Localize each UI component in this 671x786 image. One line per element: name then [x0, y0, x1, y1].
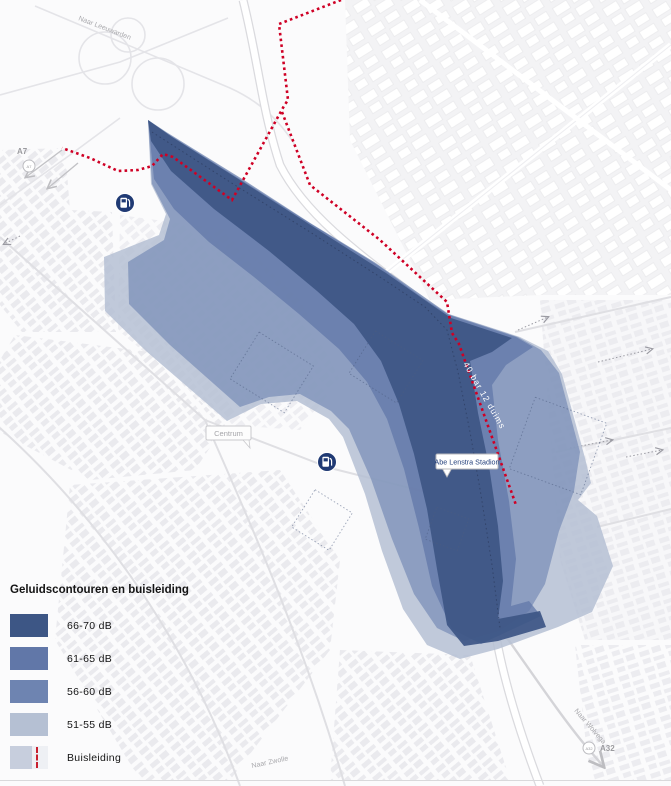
legend-swatch-66-70: [10, 614, 48, 637]
legend-label: 66-70 dB: [67, 620, 112, 632]
a7-road-badge: A7: [23, 160, 35, 172]
legend-item-51-55: 51-55 dB: [10, 713, 240, 736]
fuel-station-icon[interactable]: [116, 194, 135, 213]
legend-item-buisleiding: Buisleiding: [10, 746, 240, 769]
svg-text:Centrum: Centrum: [214, 429, 243, 438]
legend-swatch-56-60: [10, 680, 48, 703]
legend-label: Buisleiding: [67, 752, 121, 764]
svg-text:A32: A32: [585, 746, 593, 751]
label-a7: A7: [17, 147, 28, 156]
legend-item-66-70: 66-70 dB: [10, 614, 240, 637]
legend-title: Geluidscontouren en buisleiding: [10, 584, 240, 596]
legend-label: 61-65 dB: [67, 653, 112, 665]
map-frame-edge: [0, 780, 671, 781]
legend-swatch-61-65: [10, 647, 48, 670]
legend-label: 56-60 dB: [67, 686, 112, 698]
fuel-station-icon[interactable]: [318, 453, 337, 472]
legend-item-61-65: 61-65 dB: [10, 647, 240, 670]
svg-text:A7: A7: [27, 164, 33, 169]
label-a32: A32: [600, 744, 615, 753]
a32-road-badge: A32: [583, 742, 595, 754]
legend-item-56-60: 56-60 dB: [10, 680, 240, 703]
legend-swatch-buisleiding-right: [32, 746, 48, 769]
legend-swatch-buisleiding: [10, 746, 48, 769]
legend-label: 51-55 dB: [67, 719, 112, 731]
svg-text:Abe Lenstra Stadion: Abe Lenstra Stadion: [434, 458, 499, 467]
legend-swatch-51-55: [10, 713, 48, 736]
legend: Geluidscontouren en buisleiding 66-70 dB…: [10, 584, 240, 779]
pipeline-dash-sample: [36, 747, 38, 768]
